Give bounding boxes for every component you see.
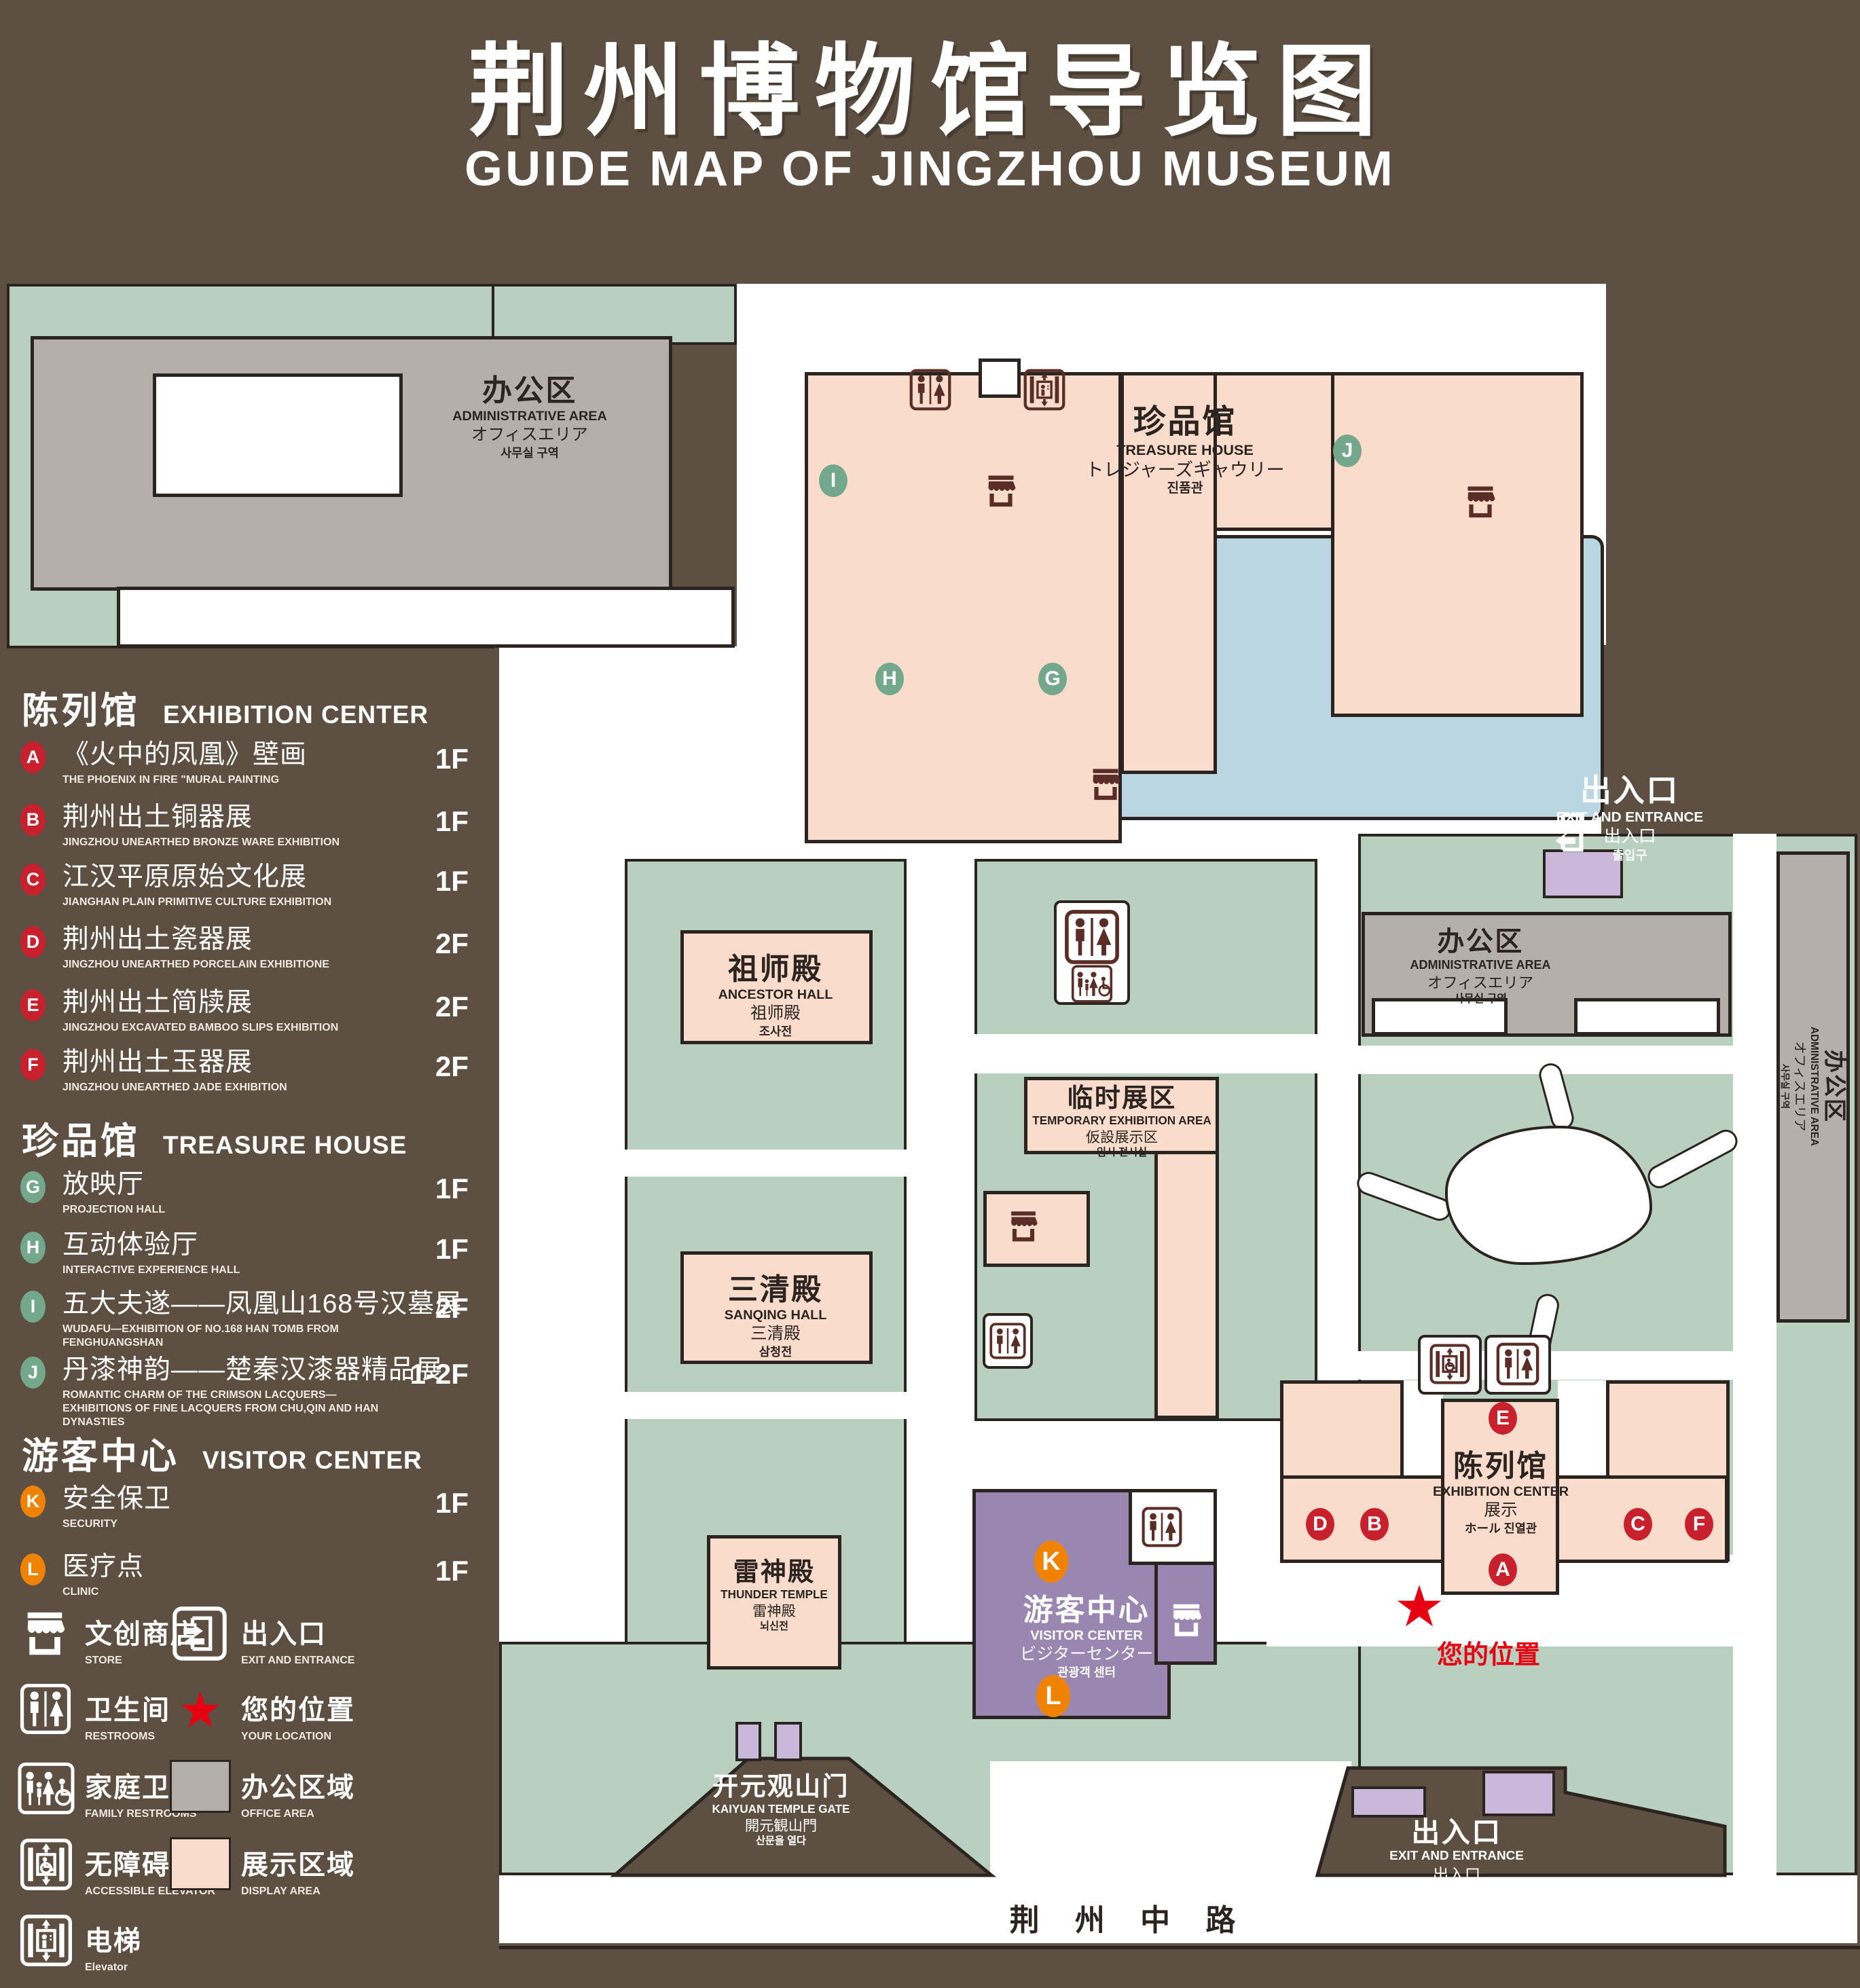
item-floor: 1F xyxy=(435,1173,469,1205)
label-jp: 仮設展示区 xyxy=(1032,1130,1211,1145)
label-en: ANCESTOR HALL xyxy=(718,988,833,1002)
item-en: WUDAFU—EXHIBITION OF NO.168 HAN TOMB FRO… xyxy=(62,1323,382,1350)
label-en: THUNDER TEMPLE xyxy=(721,1589,828,1601)
legend-section-treasure-house: 珍品馆TREASURE HOUSE xyxy=(22,1111,407,1164)
treasure-house-label: 珍品馆 TREASURE HOUSE トレジャーズギャウリー 진품관 xyxy=(1086,405,1285,496)
item-en: THE PHOENIX IN FIRE "MURAL PAINTING xyxy=(62,773,382,787)
admin-east-court xyxy=(1574,998,1720,1035)
legend-item-J: J 丹漆神韵——楚秦汉漆器精品展 ROMANTIC CHARM OF THE C… xyxy=(20,1357,469,1429)
symbol-en: RESTROOMS xyxy=(85,1731,170,1743)
section-title-zh: 珍品馆 xyxy=(22,1121,140,1162)
elevator-icon xyxy=(19,1913,73,1968)
label-en: ADMINISTRATIVE AREA xyxy=(452,409,606,424)
badge-K: K xyxy=(20,1486,45,1517)
your-location-label: 您的位置 xyxy=(1437,1634,1540,1671)
item-en: SECURITY xyxy=(62,1517,382,1531)
store-icon xyxy=(1004,1207,1043,1247)
symbol-zh: 办公区域 xyxy=(241,1765,355,1805)
symbol-zh: 卫生间 xyxy=(85,1688,170,1727)
road xyxy=(499,1946,1860,1988)
badge-D: D xyxy=(20,926,45,958)
symbol-en: YOUR LOCATION xyxy=(241,1731,355,1743)
legend-item-G: G 放映厅 PROJECTION HALL 1F xyxy=(20,1171,469,1217)
legend-item-L: L 医疗点 CLINIC 1F xyxy=(20,1553,469,1599)
item-floor: 1F xyxy=(435,1233,469,1266)
label-zh: 开元观山门 xyxy=(712,1773,850,1801)
walk-path xyxy=(1733,834,1776,1875)
badge-A: A xyxy=(20,741,45,773)
legend-item-F: F 荆州出土玉器展 JINGZHOU UNEARTHED JADE EXHIBI… xyxy=(20,1049,469,1094)
item-en: JINGZHOU UNEARTHED JADE EXHIBITION xyxy=(62,1081,382,1094)
item-zh: 医疗点 xyxy=(62,1553,469,1581)
label-en: SANQING HALL xyxy=(725,1308,827,1323)
label-jp: ビジターセンター xyxy=(1020,1646,1154,1664)
treasure-house-notch xyxy=(979,358,1021,398)
item-floor: 1F xyxy=(435,743,469,775)
family-restroom-icon xyxy=(15,1761,77,1816)
label-kr: ホール 진열관 xyxy=(1433,1522,1569,1535)
map-marker-K: K xyxy=(1034,1541,1068,1583)
legend-symbol-office-area: 办公区域 OFFICE AREA xyxy=(241,1765,355,1820)
legend-item-D: D 荆州出土瓷器展 JINGZHOU UNEARTHED PORCELAIN E… xyxy=(20,926,469,972)
label-zh: 办公区 xyxy=(452,375,606,407)
label-zh: 陈列馆 xyxy=(1433,1450,1569,1483)
label-en: VISITOR CENTER xyxy=(1020,1629,1154,1643)
item-en: INTERACTIVE EXPERIENCE HALL xyxy=(62,1264,382,1277)
label-kr: 사무실 구역 xyxy=(452,447,606,460)
symbol-zh: 出入口 xyxy=(241,1612,354,1651)
store-icon xyxy=(17,1606,73,1662)
item-zh: 荆州出土简牍展 xyxy=(62,989,469,1017)
badge-J: J xyxy=(20,1357,45,1388)
label-jp: 出入口 xyxy=(1389,1866,1524,1883)
treasure-house-west-wing xyxy=(805,372,1122,843)
item-zh: 丹漆神韵——楚秦汉漆器精品展 xyxy=(62,1357,469,1384)
store-icon xyxy=(1085,765,1126,805)
item-floor: 2F xyxy=(435,1050,469,1083)
page-title: 荆州博物馆导览图 xyxy=(0,10,1860,155)
section-title-zh: 游客中心 xyxy=(22,1436,179,1477)
entrance-pad-south xyxy=(1482,1771,1555,1816)
item-en: JINGZHOU UNEARTHED PORCELAIN EXHIBITIONE xyxy=(62,958,382,972)
label-jp: 展示 xyxy=(1433,1502,1569,1520)
section-title-en: VISITOR CENTER xyxy=(202,1446,422,1474)
label-kr: 사무실 구역 xyxy=(1410,993,1551,1005)
map-marker-B: B xyxy=(1360,1508,1389,1541)
legend-symbol-your-location: 您的位置 YOUR LOCATION xyxy=(241,1688,355,1743)
item-zh: 江汉平原原始文化展 xyxy=(62,864,469,891)
item-en: ROMANTIC CHARM OF THE CRIMSON LACQUERS—E… xyxy=(62,1388,382,1429)
admin-far-east-label: 办公区 ADMINISTRATIVE AREA オフィスエリア 사무실 구역 xyxy=(1780,1027,1846,1146)
legend-item-K: K 安全保卫 SECURITY 1F xyxy=(20,1486,469,1531)
label-en: ADMINISTRATIVE AREA xyxy=(1808,1027,1820,1146)
section-title-en: EXHIBITION CENTER xyxy=(163,701,428,729)
page-subtitle: GUIDE MAP OF JINGZHOU MUSEUM xyxy=(0,141,1860,197)
item-zh: 五大夫遂——凤凰山168号汉墓展 xyxy=(62,1291,469,1319)
label-kr: 뇌신전 xyxy=(721,1621,828,1632)
ancestor-hall-label: 祖师殿 ANCESTOR HALL 祖师殿 조사전 xyxy=(718,953,833,1038)
badge-E: E xyxy=(20,989,45,1021)
store-icon xyxy=(1460,482,1501,523)
label-zh: 临时展区 xyxy=(1032,1085,1211,1113)
item-zh: 互动体验厅 xyxy=(62,1232,469,1259)
label-zh: 祖师殿 xyxy=(718,953,833,986)
item-zh: 荆州出土瓷器展 xyxy=(62,926,469,954)
label-zh: 游客中心 xyxy=(1020,1594,1154,1627)
map-marker-C: C xyxy=(1624,1508,1652,1541)
family-restroom-icon xyxy=(1063,964,1120,1004)
admin-nw-forecourt xyxy=(117,587,735,648)
walk-path xyxy=(625,1392,907,1419)
label-en: EXHIBITION CENTER xyxy=(1433,1485,1569,1499)
badge-H: H xyxy=(20,1232,45,1264)
legend-symbol-elevator: 电梯 Elevator xyxy=(85,1919,142,1974)
item-en: JINGZHOU UNEARTHED BRONZE WARE EXHIBITIO… xyxy=(62,836,382,849)
item-en: JINGZHOU EXCAVATED BAMBOO SLIPS EXHIBITI… xyxy=(62,1021,382,1035)
label-kr: 산문을 열다 xyxy=(712,1836,850,1847)
map-marker-J: J xyxy=(1333,435,1362,467)
restroom-icon xyxy=(1141,1502,1183,1552)
label-jp: オフィスエリア xyxy=(1410,975,1551,991)
item-zh: 放映厅 xyxy=(62,1171,469,1199)
map-marker-F: F xyxy=(1685,1508,1713,1541)
label-jp: 開元観山門 xyxy=(712,1818,850,1834)
legend-item-H: H 互动体验厅 INTERACTIVE EXPERIENCE HALL 1F xyxy=(20,1232,469,1277)
section-title-en: TREASURE HOUSE xyxy=(163,1131,407,1159)
legend-item-I: I 五大夫遂——凤凰山168号汉墓展 WUDAFU—EXHIBITION OF … xyxy=(20,1291,469,1350)
guide-map-poster: 荆州博物馆导览图 GUIDE MAP OF JINGZHOU MUSEUM xyxy=(0,0,1860,1988)
item-floor: 1-2F xyxy=(410,1358,469,1391)
item-floor: 2F xyxy=(435,1292,469,1325)
label-kr: 임시 전시실 xyxy=(1032,1147,1211,1158)
map-marker-L: L xyxy=(1036,1675,1070,1717)
legend-item-E: E 荆州出土简牍展 JINGZHOU EXCAVATED BAMBOO SLIP… xyxy=(20,989,469,1035)
label-kr: 삼청전 xyxy=(725,1346,827,1359)
label-kr: 출입구 xyxy=(1556,849,1703,862)
label-zh: 珍品馆 xyxy=(1086,405,1285,440)
legend-section-exhibition-center: 陈列馆EXHIBITION CENTER xyxy=(22,680,428,734)
legend-symbol-display-area: 展示区域 DISPLAY AREA xyxy=(241,1843,355,1898)
item-floor: 1F xyxy=(435,1555,469,1587)
map-marker-A: A xyxy=(1489,1553,1517,1586)
legend-section-visitor-center: 游客中心VISITOR CENTER xyxy=(22,1426,422,1479)
walk-path xyxy=(625,1149,907,1177)
elevator-icon xyxy=(1023,367,1066,413)
thunder-temple-label: 雷神殿 THUNDER TEMPLE 雷神殿 뇌신전 xyxy=(721,1559,828,1633)
admin-nw-label: 办公区 ADMINISTRATIVE AREA オフィスエリア 사무실 구역 xyxy=(452,375,606,460)
item-zh: 安全保卫 xyxy=(62,1486,469,1513)
item-zh: 《火中的凤凰》壁画 xyxy=(62,741,469,769)
badge-I: I xyxy=(20,1291,45,1323)
label-zh: 办公区 xyxy=(1822,1027,1847,1146)
symbol-zh: 您的位置 xyxy=(241,1688,355,1727)
item-floor: 1F xyxy=(435,1487,469,1520)
symbol-zh: 电梯 xyxy=(85,1919,142,1958)
section-title-zh: 陈列馆 xyxy=(22,691,140,731)
symbol-en: DISPLAY AREA xyxy=(241,1885,355,1898)
map-marker-D: D xyxy=(1306,1508,1334,1541)
item-floor: 1F xyxy=(435,865,469,898)
legend-symbol-exit: 出入口 EXIT AND ENTRANCE xyxy=(241,1612,354,1667)
legend-item-B: B 荆州出土铜器展 JINGZHOU UNEARTHED BRONZE WARE… xyxy=(20,804,469,849)
your-location-star-icon: ★ xyxy=(1393,1573,1444,1640)
sanqing-hall-label: 三清殿 SANQING HALL 三清殿 삼청전 xyxy=(725,1274,827,1359)
symbol-en: Elevator xyxy=(85,1962,142,1974)
item-zh: 荆州出土铜器展 xyxy=(62,804,469,832)
label-jp: 出入口 xyxy=(1556,828,1703,847)
label-jp: 三清殿 xyxy=(725,1325,827,1344)
item-floor: 1F xyxy=(435,805,469,838)
label-zh: 出入口 xyxy=(1389,1817,1524,1847)
legend-item-A: A 《火中的凤凰》壁画 THE PHOENIX IN FIRE "MURAL P… xyxy=(20,741,469,787)
badge-F: F xyxy=(20,1049,45,1081)
label-jp: 雷神殿 xyxy=(721,1604,828,1619)
item-en: JIANGHAN PLAIN PRIMITIVE CULTURE EXHIBIT… xyxy=(62,896,382,909)
label-en: EXIT AND ENTRANCE xyxy=(1389,1849,1524,1863)
visitor-center-label: 游客中心 VISITOR CENTER ビジターセンター 관광객 센터 xyxy=(1020,1594,1154,1679)
admin-nw-courtyard xyxy=(153,373,403,497)
label-kr: 출입구 xyxy=(1389,1885,1524,1898)
label-zh: 办公区 xyxy=(1410,927,1551,957)
exit-ne-label: 出入口 EXIT AND ENTRANCE 出入口 출입구 xyxy=(1556,774,1703,862)
entrance-plaza xyxy=(990,1761,1351,1877)
exit-south-label: 出入口 EXIT AND ENTRANCE 出入口 출입구 xyxy=(1389,1817,1524,1898)
accessible-elevator-icon xyxy=(19,1837,73,1892)
treasure-house-east-wing xyxy=(1331,372,1584,717)
exit-icon xyxy=(171,1605,228,1662)
display-area-swatch xyxy=(170,1837,231,1890)
item-floor: 2F xyxy=(435,991,469,1023)
label-en: ADMINISTRATIVE AREA xyxy=(1410,959,1551,972)
item-zh: 荆州出土玉器展 xyxy=(62,1049,469,1077)
gate-label: 开元观山门 KAIYUAN TEMPLE GATE 開元観山門 산문을 열다 xyxy=(712,1773,850,1847)
store-icon xyxy=(981,471,1021,512)
badge-C: C xyxy=(20,864,45,896)
label-jp: トレジャーズギャウリー xyxy=(1086,460,1285,480)
map-marker-E: E xyxy=(1489,1402,1517,1435)
badge-B: B xyxy=(20,804,45,836)
walk-path xyxy=(974,1034,1317,1073)
label-kr: 조사전 xyxy=(718,1025,833,1038)
label-jp: 祖师殿 xyxy=(718,1005,833,1023)
garden-pond xyxy=(1445,1126,1652,1265)
gate-pad xyxy=(774,1722,802,1761)
gate-pad xyxy=(735,1722,761,1761)
symbol-zh: 展示区域 xyxy=(241,1843,355,1882)
label-en: EXIT AND ENTRANCE xyxy=(1556,810,1703,825)
label-zh: 出入口 xyxy=(1556,774,1703,808)
item-en: CLINIC xyxy=(62,1585,382,1599)
label-en: TREASURE HOUSE xyxy=(1086,442,1285,458)
label-kr: 사무실 구역 xyxy=(1780,1027,1790,1146)
exhibition-center-label: 陈列馆 EXHIBITION CENTER 展示 ホール 진열관 xyxy=(1433,1450,1569,1535)
label-jp: オフィスエリア xyxy=(1791,1027,1806,1146)
label-kr: 진품관 xyxy=(1086,482,1285,496)
map-marker-G: G xyxy=(1038,663,1067,695)
label-en: TEMPORARY EXHIBITION AREA xyxy=(1032,1115,1211,1127)
admin-east-label: 办公区 ADMINISTRATIVE AREA オフィスエリア 사무실 구역 xyxy=(1410,927,1551,1005)
label-en: KAIYUAN TEMPLE GATE xyxy=(712,1803,850,1816)
symbol-en: OFFICE AREA xyxy=(241,1808,355,1820)
store-icon xyxy=(1165,1600,1207,1642)
location-star-icon: ★ xyxy=(178,1685,223,1735)
restroom-icon xyxy=(909,367,952,413)
legend-item-C: C 江汉平原原始文化展 JIANGHAN PLAIN PRIMITIVE CUL… xyxy=(20,864,469,909)
entrance-pad-south xyxy=(1351,1786,1426,1818)
restroom-icon xyxy=(989,1319,1027,1363)
label-jp: オフィスエリア xyxy=(452,426,606,445)
label-zh: 雷神殿 xyxy=(721,1559,828,1587)
office-area-swatch xyxy=(170,1760,231,1813)
map-marker-I: I xyxy=(819,464,847,497)
restroom-icon xyxy=(1495,1342,1540,1386)
symbol-en: EXIT AND ENTRANCE xyxy=(241,1655,354,1667)
accessible-elevator-icon xyxy=(1429,1342,1471,1386)
item-floor: 2F xyxy=(435,927,469,960)
label-kr: 관광객 센터 xyxy=(1020,1666,1154,1679)
legend-symbol-restrooms: 卫生间 RESTROOMS xyxy=(85,1688,170,1743)
item-en: PROJECTION HALL xyxy=(62,1203,382,1217)
badge-L: L xyxy=(20,1553,45,1585)
restroom-icon xyxy=(1063,908,1120,965)
road-label: 荆 州 中 路 xyxy=(1010,1896,1250,1939)
temporary-exhibition-label: 临时展区 TEMPORARY EXHIBITION AREA 仮設展示区 임시 … xyxy=(1032,1085,1211,1159)
map-marker-H: H xyxy=(875,663,904,695)
label-zh: 三清殿 xyxy=(725,1274,827,1306)
badge-G: G xyxy=(20,1171,45,1203)
restroom-icon xyxy=(19,1682,72,1735)
